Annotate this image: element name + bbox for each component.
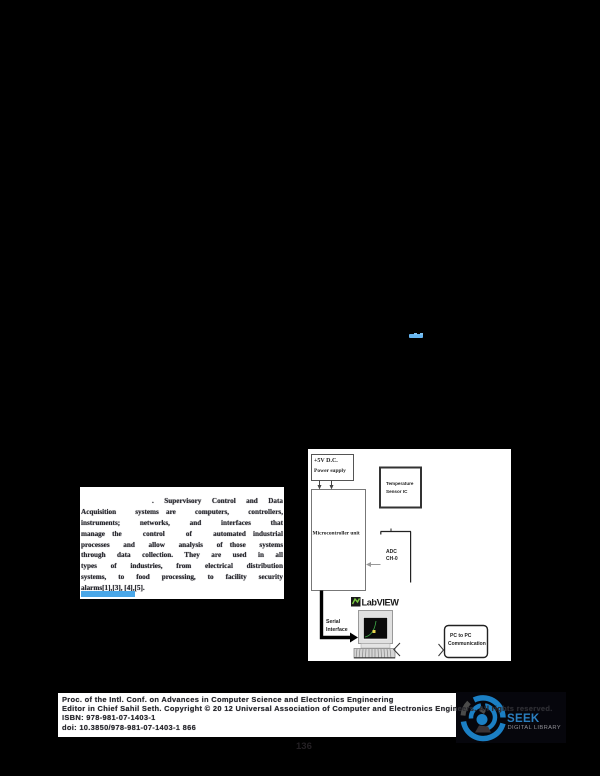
svg-text:ADC: ADC: [386, 549, 397, 555]
svg-text:Serial: Serial: [326, 619, 341, 625]
svg-text:PC to PC: PC to PC: [450, 633, 472, 639]
svg-text:Communication: Communication: [448, 641, 486, 647]
svg-text:Interface: Interface: [326, 627, 348, 633]
svg-text:Sensor IC: Sensor IC: [386, 489, 408, 494]
svg-text:Temperature: Temperature: [386, 481, 414, 486]
svg-text:+5V D.C.: +5V D.C.: [314, 458, 338, 464]
svg-text:CH-0: CH-0: [386, 556, 398, 562]
svg-text:LabVIEW: LabVIEW: [362, 598, 400, 608]
svg-text:Microcontroller unit: Microcontroller unit: [313, 531, 360, 537]
svg-text:Power supply: Power supply: [314, 468, 346, 474]
